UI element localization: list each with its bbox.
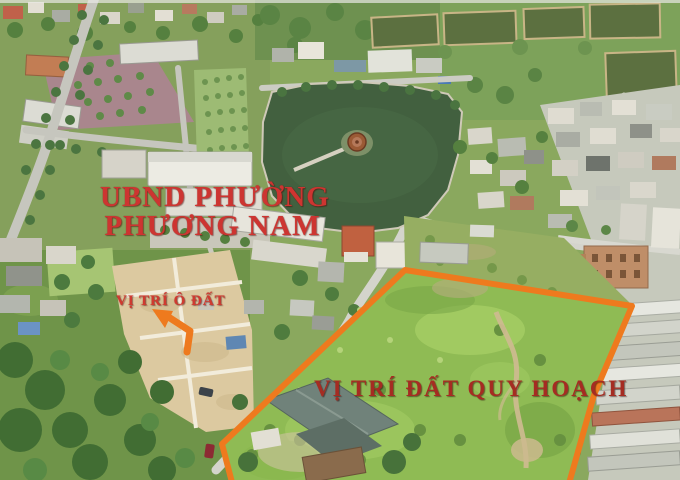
photo-top-edge — [0, 0, 680, 3]
ward-committee-label-line2: PHƯƠNG NAM — [100, 212, 325, 241]
planned-land-label: VỊ TRÍ ĐẤT QUY HOẠCH — [314, 376, 628, 402]
ward-committee-label-line1: UBND PHƯỜNG — [100, 183, 325, 212]
annotated-aerial-photo: UBND PHƯỜNG PHƯƠNG NAM VỊ TRÍ Ô ĐẤT VỊ T… — [0, 0, 680, 480]
pagoda-island-icon — [341, 130, 373, 156]
ward-committee-label: UBND PHƯỜNG PHƯƠNG NAM — [100, 183, 325, 241]
plot-location-label: VỊ TRÍ Ô ĐẤT — [116, 293, 226, 310]
